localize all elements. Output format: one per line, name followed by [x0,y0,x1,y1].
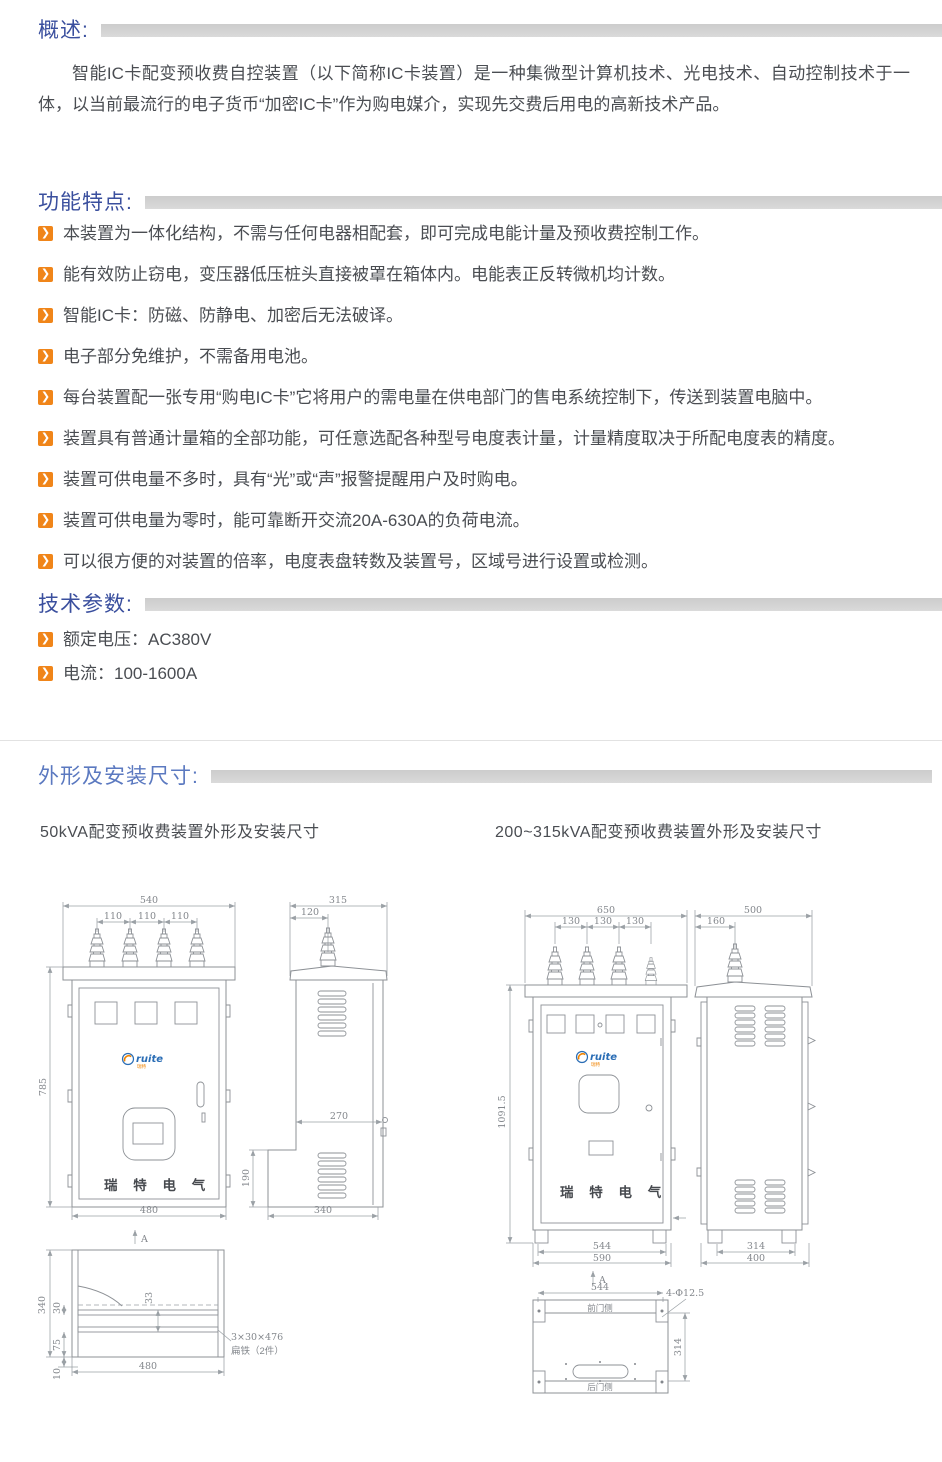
dim-label: 785 [38,1078,49,1096]
list-item: ❯能有效防止窃电，变压器低压桩头直接被罩在箱体内。电能表正反转微机均计数。 [38,265,918,285]
feature-text: 电子部分免维护，不需备用电池。 [63,347,318,367]
section-arrow-label: A [140,1234,148,1245]
outline-heading: 外形及安装尺寸: [38,760,199,790]
chevron-bullet-icon: ❯ [38,226,53,241]
dim-label: 340 [37,1296,48,1314]
right-side-view: 500 160 314 400 [695,905,815,1267]
left-front-view: 540 110 110 110 瑞 特 电 气 785 [38,895,235,1245]
dim-label: 590 [593,1253,611,1264]
dim-label: 314 [673,1338,684,1356]
dim-label: 650 [597,905,615,916]
dim-label: 500 [744,905,762,916]
dim-label: 544 [593,1241,611,1252]
chevron-bullet-icon: ❯ [38,632,53,647]
list-item: ❯电流：100-1600A [38,664,918,683]
product-page: 概述: 智能IC卡配变预收费自控装置（以下简称IC卡装置）是一种集微型计算机技术… [0,0,942,1462]
feature-text: 本装置为一体化结构，不需与任何电器相配套，即可完成电能计量及预收费控制工作。 [63,224,709,244]
features-list: ❯本装置为一体化结构，不需与任何电器相配套，即可完成电能计量及预收费控制工作。 … [38,224,918,593]
brand-text: 瑞 特 电 气 [560,1184,667,1200]
features-heading: 功能特点: [38,186,133,216]
brand-text: 瑞 特 电 气 [104,1177,211,1193]
dim-label: 130 [562,916,580,927]
right-bottom-view: A 544 前门侧 后门侧 4-Φ12.5 314 [533,1271,704,1393]
chevron-bullet-icon: ❯ [38,431,53,446]
front-door-label: 前门侧 [587,1303,613,1313]
left-side-view: 315 120 270 190 340 [241,895,388,1220]
dim-label: 400 [747,1253,765,1264]
dim-label: 480 [140,1205,158,1216]
list-item: ❯本装置为一体化结构，不需与任何电器相配套，即可完成电能计量及预收费控制工作。 [38,224,918,244]
overview-heading-bar [101,24,942,37]
specs-section-header: 技术参数: [38,588,942,618]
feature-text: 每台装置配一张专用“购电IC卡”它将用户的需电量在供电部门的售电系统控制下，传送… [63,388,822,408]
dim-label: 315 [329,895,347,906]
flat-iron-note: 3×30×476 [231,1332,283,1343]
feature-text: 可以很方便的对装置的倍率，电度表盘转数及装置号，区域号进行设置或检测。 [63,552,658,572]
dim-label: 30 [52,1302,63,1314]
dim-label: 120 [301,907,319,918]
chevron-bullet-icon: ❯ [38,554,53,569]
spec-text: 电流：100-1600A [63,664,197,683]
feature-text: 智能IC卡：防磁、防静电、加密后无法破译。 [63,306,403,326]
technical-drawings: ruite 瑞特 540 110 110 110 [0,888,942,1462]
dim-label: 130 [626,916,644,927]
left-bottom-view: 33 340 30 75 10 480 3×30×476 扁铁（2件） [37,1250,284,1380]
dim-label: 130 [594,916,612,927]
chevron-bullet-icon: ❯ [38,472,53,487]
dim-label: 33 [144,1292,155,1304]
list-item: ❯每台装置配一张专用“购电IC卡”它将用户的需电量在供电部门的售电系统控制下，传… [38,388,918,408]
chevron-bullet-icon: ❯ [38,666,53,681]
features-heading-bar [145,196,942,209]
right-drawing-subtitle: 200~315kVA配变预收费装置外形及安装尺寸 [495,818,822,842]
list-item: ❯额定电压：AC380V [38,630,918,649]
list-item: ❯电子部分免维护，不需备用电池。 [38,347,918,367]
list-item: ❯智能IC卡：防磁、防静电、加密后无法破译。 [38,306,918,326]
features-section-header: 功能特点: [38,186,942,216]
dim-label: 110 [171,911,189,922]
right-front-view: 650 130 130 130 瑞 特 电 气 [497,905,687,1267]
chevron-bullet-icon: ❯ [38,390,53,405]
overview-paragraph: 智能IC卡配变预收费自控装置（以下简称IC卡装置）是一种集微型计算机技术、光电技… [38,58,910,120]
dim-label: 10 [52,1368,63,1380]
specs-heading-bar [145,598,942,611]
back-door-label: 后门侧 [587,1382,613,1392]
chevron-bullet-icon: ❯ [38,267,53,282]
chevron-bullet-icon: ❯ [38,513,53,528]
dim-label: 480 [139,1361,157,1372]
feature-text: 装置可供电量不多时，具有“光”或“声”报警提醒用户及时购电。 [63,470,528,490]
holes-note: 4-Φ12.5 [666,1288,704,1299]
dim-label: 110 [138,911,156,922]
dim-label: 540 [140,895,158,906]
feature-text: 装置可供电量为零时，能可靠断开交流20A-630A的负荷电流。 [63,511,530,531]
dim-label: 270 [330,1111,348,1122]
dim-label: 190 [241,1169,252,1187]
list-item: ❯可以很方便的对装置的倍率，电度表盘转数及装置号，区域号进行设置或检测。 [38,552,918,572]
chevron-bullet-icon: ❯ [38,308,53,323]
feature-text: 能有效防止窃电，变压器低压桩头直接被罩在箱体内。电能表正反转微机均计数。 [63,265,675,285]
dim-label: 160 [707,916,725,927]
dim-label: 544 [591,1282,609,1293]
overview-heading: 概述: [38,14,89,44]
outline-heading-bar [211,770,932,783]
specs-heading: 技术参数: [38,588,133,618]
flat-iron-note: 扁铁（2件） [231,1345,284,1357]
list-item: ❯装置可供电量不多时，具有“光”或“声”报警提醒用户及时购电。 [38,470,918,490]
specs-list: ❯额定电压：AC380V ❯电流：100-1600A [38,630,918,698]
list-item: ❯装置可供电量为零时，能可靠断开交流20A-630A的负荷电流。 [38,511,918,531]
dim-label: 75 [52,1339,63,1351]
list-item: ❯装置具有普通计量箱的全部功能，可任意选配各种型号电度表计量，计量精度取决于所配… [38,429,918,449]
section-divider [0,740,942,741]
outline-section-header: 外形及安装尺寸: [38,760,932,790]
feature-text: 装置具有普通计量箱的全部功能，可任意选配各种型号电度表计量，计量精度取决于所配电… [63,429,845,449]
dim-label: 314 [747,1241,765,1252]
spec-text: 额定电压：AC380V [63,630,211,649]
chevron-bullet-icon: ❯ [38,349,53,364]
dim-label: 1091.5 [497,1095,508,1128]
dim-label: 110 [104,911,122,922]
dim-label: 340 [314,1205,332,1216]
left-drawing-subtitle: 50kVA配变预收费装置外形及安装尺寸 [40,818,319,842]
overview-section-header: 概述: [38,14,942,44]
